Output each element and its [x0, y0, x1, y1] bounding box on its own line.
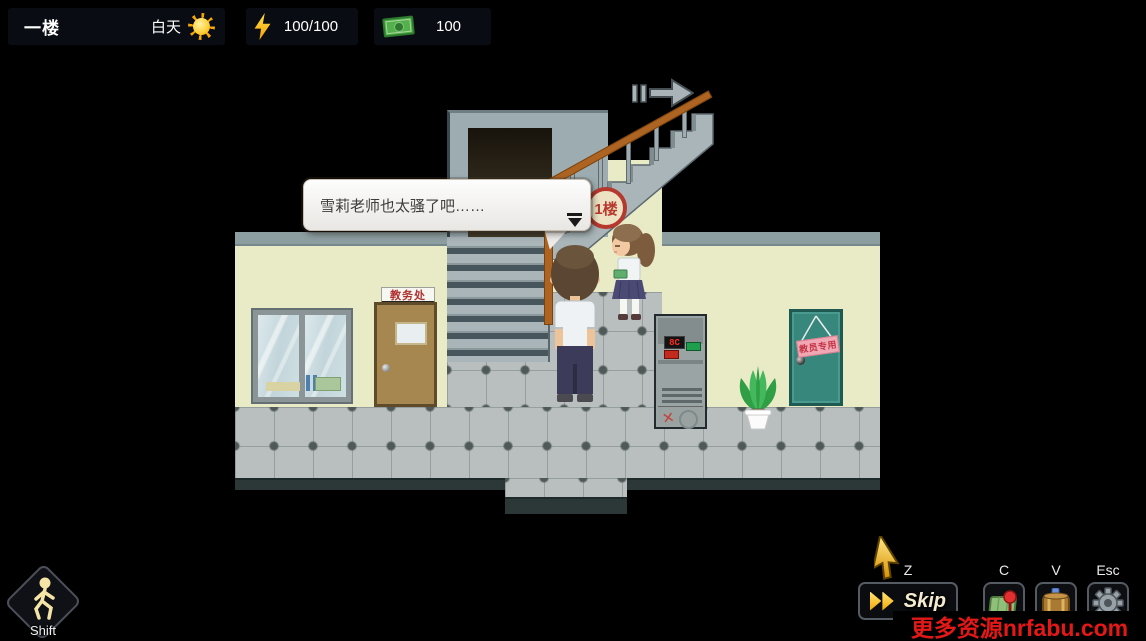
- front-staircase[interactable]: [447, 237, 550, 362]
- stair-baluster: [626, 141, 631, 184]
- vending-slots: [662, 388, 702, 404]
- sun-icon: [188, 13, 215, 40]
- settings-key-label: Esc: [1087, 562, 1129, 578]
- sprint-hint[interactable]: Shift: [8, 566, 78, 638]
- player-character[interactable]: [549, 242, 601, 404]
- game-screen: 教务处 1楼 8C ✕ 教员专用: [0, 0, 1146, 641]
- vending-scribble: [679, 410, 698, 429]
- watermark: 更多资源nrfabu.com: [893, 611, 1146, 641]
- office-door-window: [395, 322, 427, 345]
- continue-arrow-icon: [567, 213, 582, 227]
- teacher-sign-text: 教员专用: [798, 337, 837, 355]
- vending-machine[interactable]: 8C ✕: [654, 314, 707, 429]
- npc-girl[interactable]: [606, 218, 656, 322]
- floor-extension: [505, 478, 627, 497]
- floor-sign-text: 1楼: [594, 198, 617, 219]
- left-wall-trim: [235, 232, 447, 246]
- office-sign-text: 教务处: [390, 287, 426, 303]
- floor-extension-base: [505, 497, 627, 514]
- potted-plant: [735, 360, 781, 430]
- office-door-knob: [382, 364, 390, 372]
- office-door[interactable]: [374, 302, 437, 407]
- energy-value: 100/100: [272, 18, 350, 35]
- floor-label: 一楼: [24, 14, 60, 39]
- hud-energy-panel: 100/100: [246, 8, 358, 45]
- watermark-text: 更多资源nrfabu.com: [911, 609, 1128, 641]
- office-window: [253, 310, 351, 402]
- shift-key-label: Shift: [8, 623, 78, 638]
- items-key-label: V: [1035, 562, 1077, 578]
- walking-person-icon: [28, 576, 60, 620]
- dialogue-text: 雪莉老师也太骚了吧……: [320, 195, 485, 216]
- window-shelf-item: [266, 382, 300, 391]
- vending-red-button: [664, 350, 679, 359]
- vending-lower-panel: ✕: [658, 406, 703, 425]
- money-value: 100: [414, 18, 483, 35]
- hallway-floor: [235, 407, 880, 478]
- dialogue-bubble[interactable]: 雪莉老师也太骚了吧……: [303, 179, 591, 231]
- hud-money-panel: 100: [374, 8, 491, 45]
- map-key-label: C: [983, 562, 1025, 578]
- vending-divider: [658, 360, 703, 364]
- skip-chevron-icon: [882, 592, 893, 611]
- lightning-icon: [253, 13, 272, 40]
- skip-key-label: Z: [896, 562, 920, 578]
- vending-display: 8C: [664, 336, 685, 349]
- exit-arrow-icon[interactable]: [632, 76, 694, 110]
- vending-green-button: [686, 342, 701, 351]
- window-box: [315, 377, 341, 391]
- stair-baluster: [654, 125, 659, 161]
- time-label: 白天: [151, 16, 181, 37]
- money-icon: [382, 15, 415, 37]
- hud-floor-panel: 一楼 白天: [8, 8, 225, 45]
- vending-x-mark: ✕: [661, 408, 677, 428]
- skip-chevron-icon: [870, 592, 881, 611]
